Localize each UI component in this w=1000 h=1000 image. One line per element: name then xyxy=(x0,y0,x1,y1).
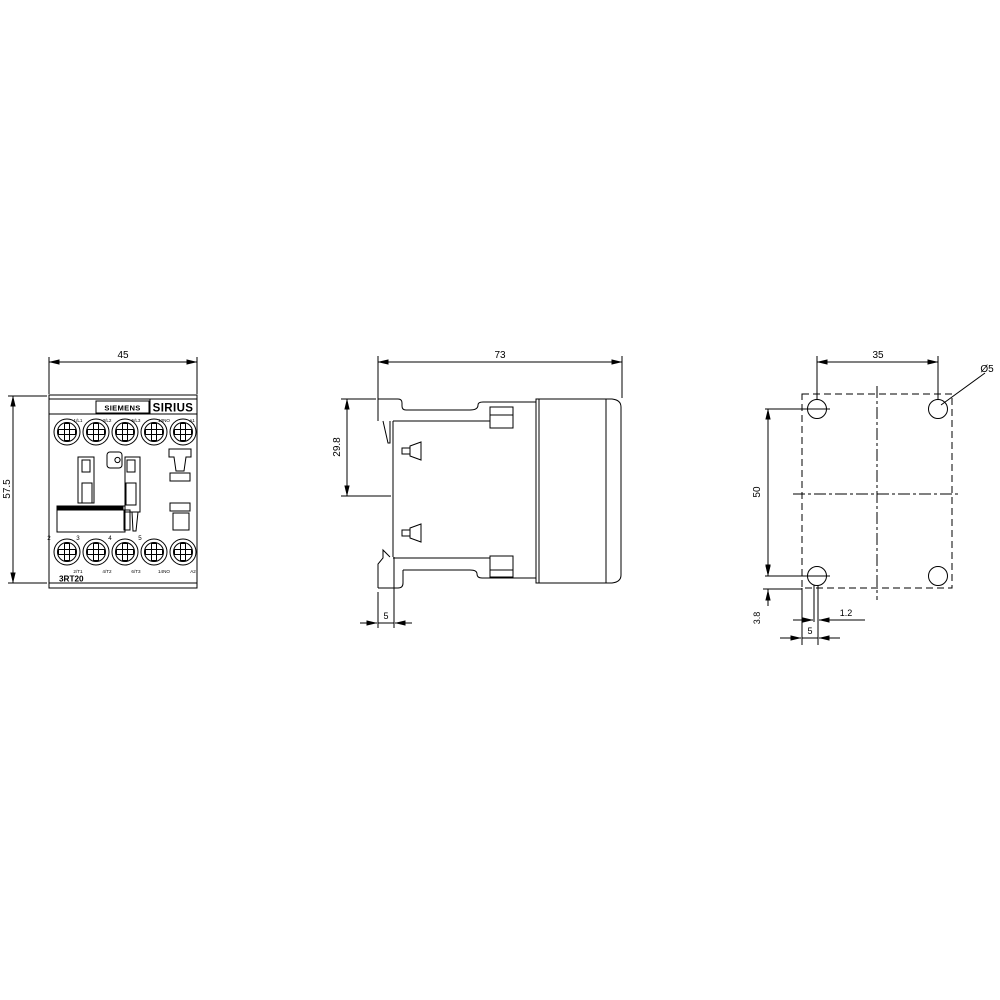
hole-dia-label: Ø5 xyxy=(980,364,994,375)
label-field-bar xyxy=(57,506,123,510)
dim-bottom-offset xyxy=(763,563,802,606)
dim-side-foot xyxy=(360,592,412,628)
dim-label-29-8: 29.8 xyxy=(332,437,343,457)
terminal-box-top xyxy=(490,407,513,428)
side-view xyxy=(341,356,622,628)
series-label: SIRIUS xyxy=(153,403,194,415)
dim-gap xyxy=(793,585,865,645)
hole-dia-leader xyxy=(941,373,985,405)
rear-block xyxy=(536,399,621,583)
terminal-label: 5/L3 xyxy=(132,418,141,423)
terminal-label: 6/T3 xyxy=(131,569,141,574)
terminal-label: 2/T1 xyxy=(73,569,83,574)
terminal-label: 4/T2 xyxy=(102,569,112,574)
model-label: 3RT20 xyxy=(59,575,84,584)
dim-label-1-2: 1.2 xyxy=(840,608,853,618)
terminal-box-bottom xyxy=(490,556,513,577)
dim-label-50: 50 xyxy=(752,486,763,498)
drawing-canvas: 45 57.5 SIEMENS SIRIUS 3RT20 1/L1 3/L2 5… xyxy=(0,0,1000,1000)
terminal-label: 3/L2 xyxy=(103,418,112,423)
pole-number: 5 xyxy=(138,535,142,542)
front-accessory-slots xyxy=(57,449,191,532)
terminal-label: 13NO xyxy=(158,418,170,423)
technical-drawing: 45 57.5 SIEMENS SIRIUS 3RT20 1/L1 3/L2 5… xyxy=(0,0,1000,1000)
dim-label-73: 73 xyxy=(494,350,506,361)
dim-label-45: 45 xyxy=(117,350,129,361)
dim-edge-distance xyxy=(780,588,840,645)
rail-clip-bottom xyxy=(378,550,390,588)
terminal-label: A2 xyxy=(190,569,196,574)
dim-label-5-side: 5 xyxy=(383,611,388,621)
dim-side-depth xyxy=(378,356,622,398)
terminal-labels-bottom: 2/T1 4/T2 6/T3 14NO A2 xyxy=(73,569,196,574)
pole-numbers: 2 3 4 5 xyxy=(47,535,142,542)
brand-label: SIEMENS xyxy=(104,404,140,413)
pole-number: 3 xyxy=(76,535,80,542)
screw-terminals-bottom xyxy=(54,539,196,565)
side-foot-corner xyxy=(378,570,403,588)
dim-label-35: 35 xyxy=(872,350,884,361)
pole-number: 2 xyxy=(47,535,51,542)
dim-front-height xyxy=(8,396,47,583)
drilling-plan xyxy=(763,356,985,645)
terminal-label: A1 xyxy=(189,418,195,423)
terminal-label: 14NO xyxy=(158,569,170,574)
pole-number: 4 xyxy=(108,535,112,542)
dim-rail-offset xyxy=(341,399,391,496)
dim-label-57-5: 57.5 xyxy=(2,479,13,499)
side-bottom-contour xyxy=(403,570,536,578)
terminal-label: 1/L1 xyxy=(74,418,83,423)
dim-label-3-8: 3.8 xyxy=(752,612,762,625)
dim-label-5-drill: 5 xyxy=(807,626,812,636)
coil-claws xyxy=(402,442,421,542)
side-top-contour xyxy=(378,399,536,410)
dim-front-width xyxy=(49,357,197,394)
rail-clip-top xyxy=(383,421,390,443)
front-view xyxy=(8,357,197,588)
